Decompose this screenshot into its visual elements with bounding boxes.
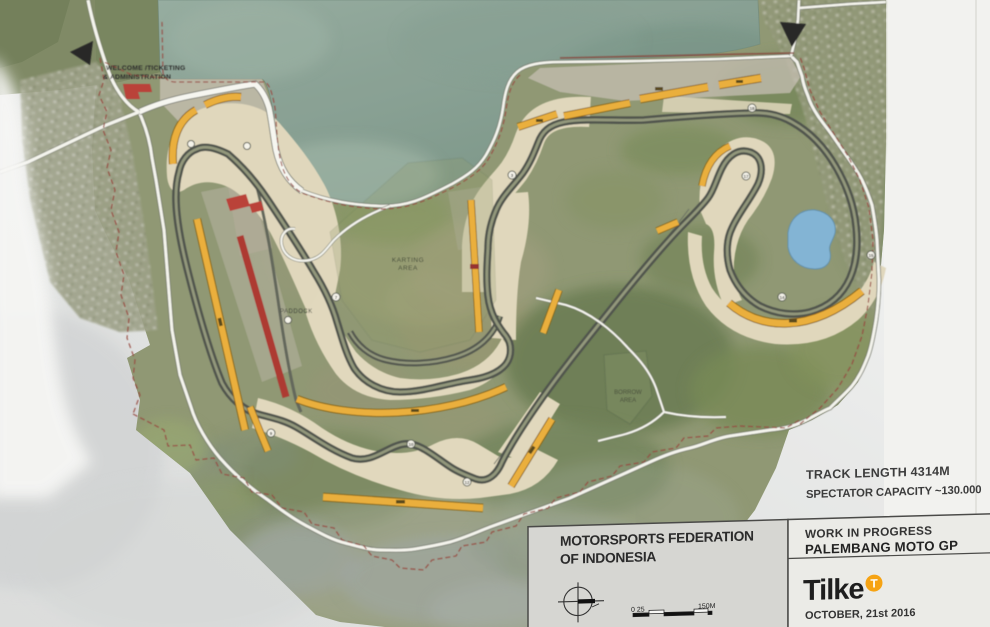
svg-text:OF INDONESIA: OF INDONESIA	[560, 549, 656, 567]
svg-text:Tilke: Tilke	[803, 573, 864, 607]
svg-text:T: T	[870, 576, 878, 590]
